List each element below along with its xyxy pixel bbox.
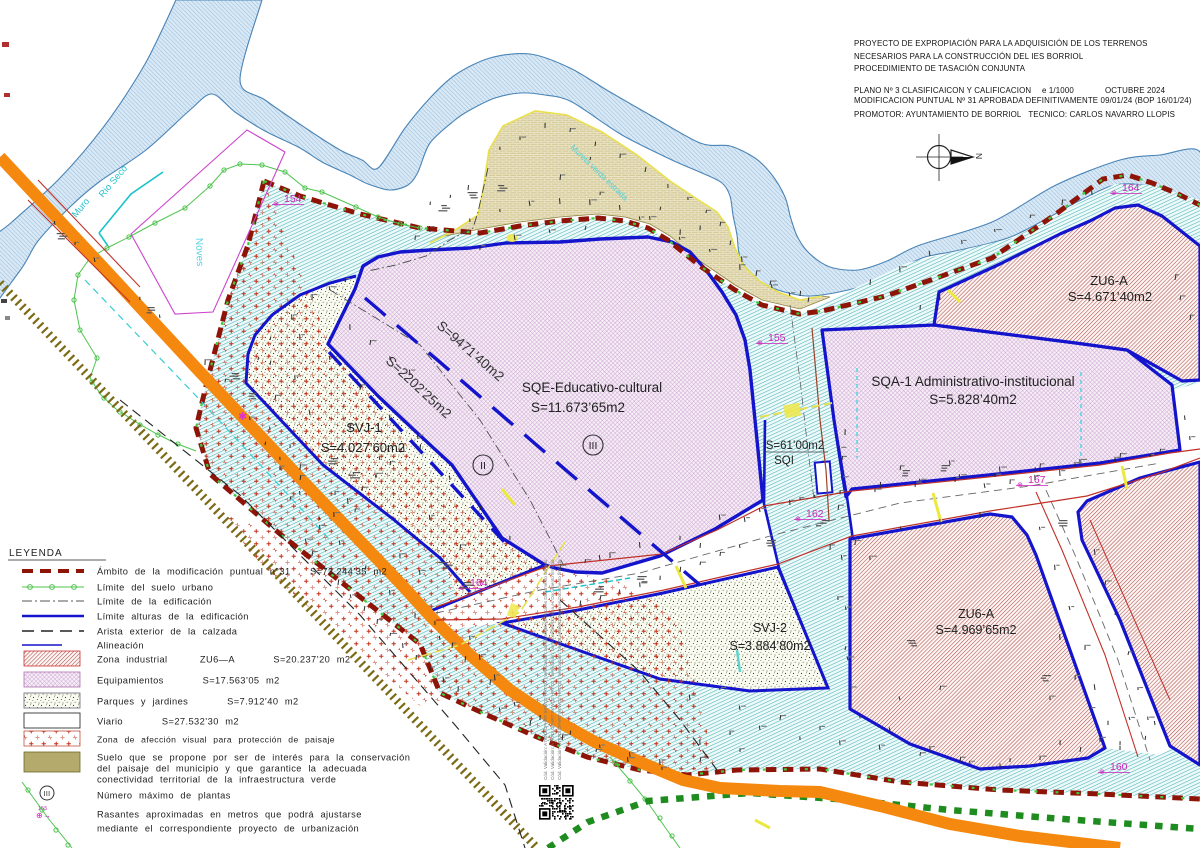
svg-text:N: N [974, 153, 984, 159]
svg-text:⊕: ⊕ [795, 516, 801, 523]
svg-text:160: 160 [1110, 761, 1128, 773]
svg-text:Equipamientos S=17.563’05: Equipamientos S=17.563’05 m2 [97, 676, 280, 686]
svg-text:SQI: SQI [774, 455, 794, 467]
svg-text:Parques y jardines S=7.: Parques y jardines S=7.912’40 m2 [97, 697, 299, 707]
svg-text:S=3.884’80m2: S=3.884’80m2 [730, 639, 811, 653]
svg-text:e 1/1000: e 1/1000 [1042, 86, 1074, 95]
svg-text:PROMOTOR: AYUNTAMIENTO DE BORR: PROMOTOR: AYUNTAMIENTO DE BORRIOL TECNIC… [854, 110, 1175, 119]
svg-text:155: 155 [38, 806, 48, 812]
svg-text:Zona de afección visual para p: Zona de afección visual para protección … [97, 735, 335, 745]
svg-text:⊕: ⊕ [757, 340, 763, 347]
svg-text:Viario S=27.532’30 m2: Viario S=27.532’30 m2 [97, 717, 239, 727]
svg-text:PROYECTO DE EXPROPIACIÓN PARA: PROYECTO DE EXPROPIACIÓN PARA LA ADQUISI… [854, 39, 1148, 48]
svg-text:164: 164 [1122, 182, 1140, 194]
svg-text:✱: ✱ [238, 411, 247, 423]
svg-text:ZU6-A: ZU6-A [958, 607, 995, 621]
svg-text:⊕: ⊕ [459, 585, 465, 592]
svg-text:Número máximo de plantas: Número máximo de plantas [97, 791, 231, 801]
svg-text:154: 154 [284, 193, 302, 205]
svg-text:Noves: Noves [193, 238, 205, 267]
svg-text:SQE-Educativo-cultural: SQE-Educativo-cultural [522, 380, 662, 395]
svg-text:II: II [480, 460, 486, 472]
svg-text:SVJ-2: SVJ-2 [753, 621, 787, 635]
svg-text:ZU6-A: ZU6-A [1090, 273, 1128, 288]
svg-text:Rasantes aproximadas en met: Rasantes aproximadas en metros que podrá… [97, 810, 362, 820]
svg-text:del paisaje del municipio: del paisaje del municipio y que garantic… [97, 764, 367, 774]
svg-text:S=4.671’40m2: S=4.671’40m2 [1068, 289, 1152, 304]
svg-text:Límite alturas de la edifi: Límite alturas de la edificación [97, 612, 249, 622]
svg-text:Ámbito de la modificación: Ámbito de la modificación puntual n°31 S… [97, 567, 387, 577]
svg-text:mediante el correspondiente: mediante el correspondiente proyecto de … [97, 824, 359, 834]
svg-text:MODIFICACION PUNTUAL Nº 31 APR: MODIFICACION PUNTUAL Nº 31 APROBADA DEFI… [854, 96, 1192, 105]
svg-text:Límite de la edificación: Límite de la edificación [97, 597, 212, 607]
svg-text:Suelo que se propone por: Suelo que se propone por ser de interés … [97, 753, 410, 763]
svg-text:⊕: ⊕ [1017, 482, 1023, 489]
svg-text:SVJ-1: SVJ-1 [346, 420, 381, 435]
svg-text:Alineación: Alineación [97, 641, 144, 651]
svg-text:PLANO Nº 3 CLASIFICAICON Y CAL: PLANO Nº 3 CLASIFICAICON Y CALIFICACION [854, 86, 1031, 95]
svg-text:Arista exterior de la calz: Arista exterior de la calzada [97, 627, 238, 637]
svg-text:Límite del suelo urbano: Límite del suelo urbano [97, 583, 213, 593]
svg-text:III: III [43, 791, 50, 798]
svg-text:⊕: ⊕ [273, 201, 279, 208]
svg-text:Cód. Validación: A7KN3 CFHRT 9: Cód. Validación: A7KN3 CFHRT 9XWQ2 HRTQ2… [543, 559, 548, 780]
svg-text:162: 162 [806, 508, 824, 520]
svg-text:⊕→: ⊕→ [36, 811, 52, 820]
svg-text:⊕: ⊕ [1099, 769, 1105, 776]
svg-text:S=4.969’65m2: S=4.969’65m2 [936, 623, 1017, 637]
svg-text:conectividad territorial de: conectividad territorial de la infraestr… [97, 775, 336, 785]
svg-text:Cód. Validación: A7KN3 CFHRT 9: Cód. Validación: A7KN3 CFHRT 9XWQ2 HRTQ2… [557, 559, 562, 780]
svg-text:PROCEDIMIENTO DE TASACIÓN CONJ: PROCEDIMIENTO DE TASACIÓN CONJUNTA [854, 64, 1026, 73]
svg-text:LEYENDA: LEYENDA [9, 548, 63, 559]
svg-text:NECESARIOS PARA LA CONSTRUCCIÓ: NECESARIOS PARA LA CONSTRUCCIÓN DEL IES … [854, 52, 1084, 61]
svg-text:Cód. Validación: A7KN3 CFHRT 9: Cód. Validación: A7KN3 CFHRT 9XWQ2 HRTQ2… [550, 559, 555, 780]
svg-text:S=4.027’60m2: S=4.027’60m2 [321, 440, 405, 455]
svg-text:164: 164 [470, 577, 488, 589]
svg-text:Zona industrial ZU6—A: Zona industrial ZU6—A S=20.237’20 m2 [97, 655, 350, 665]
svg-text:III: III [589, 440, 598, 452]
svg-text:S=11.673’65m2: S=11.673’65m2 [531, 400, 625, 415]
svg-text:S=61’00m2: S=61’00m2 [766, 440, 825, 452]
svg-text:OCTUBRE 2024: OCTUBRE 2024 [1105, 86, 1166, 95]
svg-text:S=5.828’40m2: S=5.828’40m2 [929, 392, 1016, 407]
svg-text:155: 155 [768, 332, 786, 344]
svg-text:SQA-1 Administrativo-instituc: SQA-1 Administrativo-institucional [871, 374, 1074, 389]
svg-text:⊕: ⊕ [1111, 190, 1117, 197]
